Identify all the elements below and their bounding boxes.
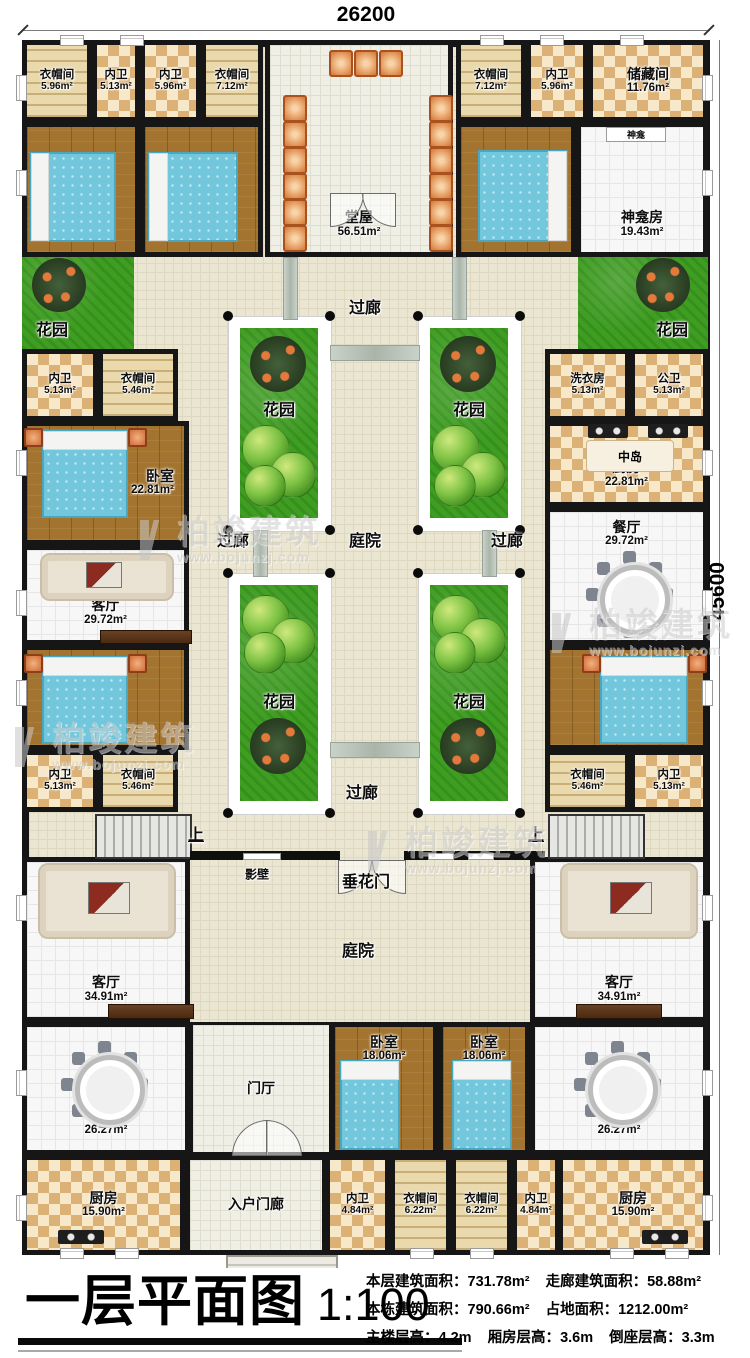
window: [16, 590, 27, 616]
stat-item: 本栋建筑面积：790.66m²: [366, 1298, 530, 1319]
bed: [42, 430, 128, 518]
desk: [576, 1004, 662, 1019]
column-dot: [223, 311, 233, 321]
window: [702, 590, 713, 616]
nightstand: [24, 428, 43, 447]
stat-item: 主楼层高：4.2m: [366, 1326, 472, 1347]
hall-chair: [283, 225, 307, 252]
dining-table: [600, 565, 670, 635]
staircase: [548, 814, 645, 859]
stat-item: 占地面积：1212.00m²: [546, 1298, 689, 1319]
label-garden: 花园: [453, 396, 485, 420]
window: [702, 450, 713, 476]
hall-chair: [379, 50, 403, 77]
window: [16, 680, 27, 706]
window: [480, 35, 504, 46]
nightstand: [24, 654, 43, 673]
window: [702, 170, 713, 196]
hall-chair: [283, 173, 307, 200]
window: [470, 1248, 494, 1259]
label-corridor: 过廊: [346, 779, 378, 803]
dimension-width-label: 26200: [337, 3, 395, 27]
label-garden: 花园: [263, 688, 295, 712]
tree: [244, 465, 286, 507]
stat-item: 走廊建筑面积：58.88m²: [546, 1270, 702, 1291]
hall-chair: [354, 50, 378, 77]
window: [60, 35, 84, 46]
column-dot: [515, 568, 525, 578]
window: [16, 1070, 27, 1096]
label-garden: 花园: [453, 688, 485, 712]
room-bathroom: 内卫5.13m²: [22, 349, 98, 421]
stats-row: 主楼层高：4.2m 厢房层高：3.6m 倒座层高：3.3m: [366, 1326, 748, 1347]
hall-chair: [283, 95, 307, 122]
label-garden: 花园: [656, 316, 688, 340]
page-title: 一层平面图: [25, 1274, 305, 1329]
bed: [452, 1060, 512, 1150]
room-closet: 衣帽间7.12m²: [201, 40, 263, 122]
window: [702, 75, 713, 101]
stats-row: 本栋建筑面积：790.66m² 占地面积：1212.00m²: [366, 1298, 748, 1319]
window: [610, 1248, 634, 1259]
label-flower-gate: 垂花门: [342, 868, 390, 892]
room-entry-porch: 入户门廊: [185, 1155, 327, 1255]
window: [702, 1070, 713, 1096]
walkway: [452, 257, 467, 320]
stat-item: 厢房层高：3.6m: [488, 1326, 594, 1347]
label-courtyard: 庭院: [342, 937, 374, 961]
label-stairs-up: 上: [188, 821, 204, 845]
window: [702, 1195, 713, 1221]
stove: [648, 424, 688, 438]
label-garden: 花园: [263, 396, 295, 420]
fruit-tree: [440, 718, 496, 774]
stove: [588, 424, 628, 438]
fruit-tree: [250, 336, 306, 392]
hall-chair: [283, 121, 307, 148]
bed: [42, 656, 128, 744]
hall-chair: [429, 95, 453, 122]
rug: [610, 882, 652, 914]
label-stairs-up: 上: [528, 821, 544, 845]
label-screen-wall: 影壁: [245, 866, 269, 883]
dining-table: [588, 1055, 658, 1125]
window: [120, 35, 144, 46]
window: [16, 450, 27, 476]
window: [16, 895, 27, 921]
window: [16, 1195, 27, 1221]
gate-wall-panel: [428, 853, 454, 860]
room-shrine: 神龛房19.43m²: [576, 122, 708, 257]
floorplan-page: 26200 45600: [0, 0, 750, 1358]
tree: [244, 632, 286, 674]
room-closet: 衣帽间6.22m²: [390, 1155, 451, 1255]
bed: [340, 1060, 400, 1150]
nightstand: [688, 654, 707, 673]
dimension-line-top: [22, 30, 710, 31]
column-dot: [413, 568, 423, 578]
fruit-tree: [32, 258, 86, 312]
desk: [108, 1004, 194, 1019]
bed: [148, 152, 238, 242]
hall-chair: [283, 199, 307, 226]
room-bathroom: 内卫5.96m²: [526, 40, 588, 122]
room-bathroom: 内卫4.84m²: [512, 1155, 560, 1255]
window: [702, 680, 713, 706]
kitchen-island: 中岛: [586, 440, 674, 472]
window: [16, 170, 27, 196]
label-corridor: 过廊: [349, 294, 381, 318]
title-block: 一层平面图 1:100 本层建筑面积：731.78m² 走廊建筑面积：58.88…: [0, 1268, 750, 1358]
column-dot: [223, 808, 233, 818]
hall-chair: [429, 225, 453, 252]
dimension-line-right: [719, 40, 720, 1255]
column-dot: [515, 311, 525, 321]
staircase: [95, 814, 192, 859]
walkway: [330, 345, 420, 361]
bed: [600, 656, 688, 744]
walkway: [253, 530, 268, 577]
rug: [88, 882, 130, 914]
room-closet: 衣帽间5.96m²: [22, 40, 92, 122]
column-dot: [515, 808, 525, 818]
nightstand: [128, 428, 147, 447]
column-dot: [325, 808, 335, 818]
window: [60, 1248, 84, 1259]
column-dot: [325, 525, 335, 535]
stats-block: 本层建筑面积：731.78m² 走廊建筑面积：58.88m² 本栋建筑面积：79…: [366, 1270, 748, 1347]
fruit-tree: [636, 258, 690, 312]
dining-table: [75, 1055, 145, 1125]
window: [620, 35, 644, 46]
fruit-tree: [440, 336, 496, 392]
window: [410, 1248, 434, 1259]
room-public-bath: 公卫5.13m²: [630, 349, 708, 421]
room-closet: 衣帽间6.22m²: [451, 1155, 512, 1255]
column-dot: [413, 525, 423, 535]
label-garden: 花园: [36, 316, 68, 340]
room-bathroom: 内卫5.13m²: [630, 750, 708, 812]
column-dot: [413, 808, 423, 818]
nightstand: [582, 654, 601, 673]
stat-item: 本层建筑面积：731.78m²: [366, 1270, 530, 1291]
room-bathroom: 内卫5.13m²: [22, 750, 98, 812]
window: [16, 75, 27, 101]
room-closet: 衣帽间5.46m²: [98, 750, 178, 812]
room-closet: 衣帽间5.46m²: [545, 750, 630, 812]
room-closet: 衣帽间5.46m²: [98, 349, 178, 421]
column-dot: [325, 568, 335, 578]
nightstand: [128, 654, 147, 673]
hall-chair: [329, 50, 353, 77]
window: [540, 35, 564, 46]
room-bathroom: 内卫5.13m²: [92, 40, 140, 122]
fruit-tree: [250, 718, 306, 774]
desk: [100, 630, 192, 644]
window: [665, 1248, 689, 1259]
tree: [434, 632, 476, 674]
label-corridor: 过廊: [217, 527, 249, 551]
window: [702, 895, 713, 921]
screen-wall-panel: [243, 853, 281, 860]
bed: [30, 152, 116, 242]
hall-chair: [429, 173, 453, 200]
room-laundry: 洗衣房5.13m²: [545, 349, 630, 421]
tree: [434, 465, 476, 507]
gate-wall-panel: [468, 853, 494, 860]
room-storage: 储藏间11.76m²: [588, 40, 708, 122]
label-corridor: 过廊: [491, 527, 523, 551]
walkway: [283, 257, 298, 320]
stat-item: 倒座层高：3.3m: [609, 1326, 715, 1347]
column-dot: [325, 311, 335, 321]
stove: [642, 1230, 688, 1244]
room-bathroom: 内卫4.84m²: [325, 1155, 390, 1255]
hall-chair: [429, 199, 453, 226]
room-closet: 衣帽间7.12m²: [456, 40, 526, 122]
hall-chair: [283, 147, 307, 174]
hall-chair: [429, 121, 453, 148]
room-bathroom: 内卫5.96m²: [140, 40, 201, 122]
label-courtyard: 庭院: [349, 527, 381, 551]
column-dot: [413, 311, 423, 321]
stats-row: 本层建筑面积：731.78m² 走廊建筑面积：58.88m²: [366, 1270, 748, 1291]
title-rule: [18, 1350, 462, 1352]
hall-chair: [429, 147, 453, 174]
walkway: [330, 742, 420, 758]
stove: [58, 1230, 104, 1244]
window: [115, 1248, 139, 1259]
bed: [478, 150, 568, 242]
rug: [86, 562, 122, 588]
shrine-shelf: 神龛: [606, 127, 666, 142]
column-dot: [223, 568, 233, 578]
